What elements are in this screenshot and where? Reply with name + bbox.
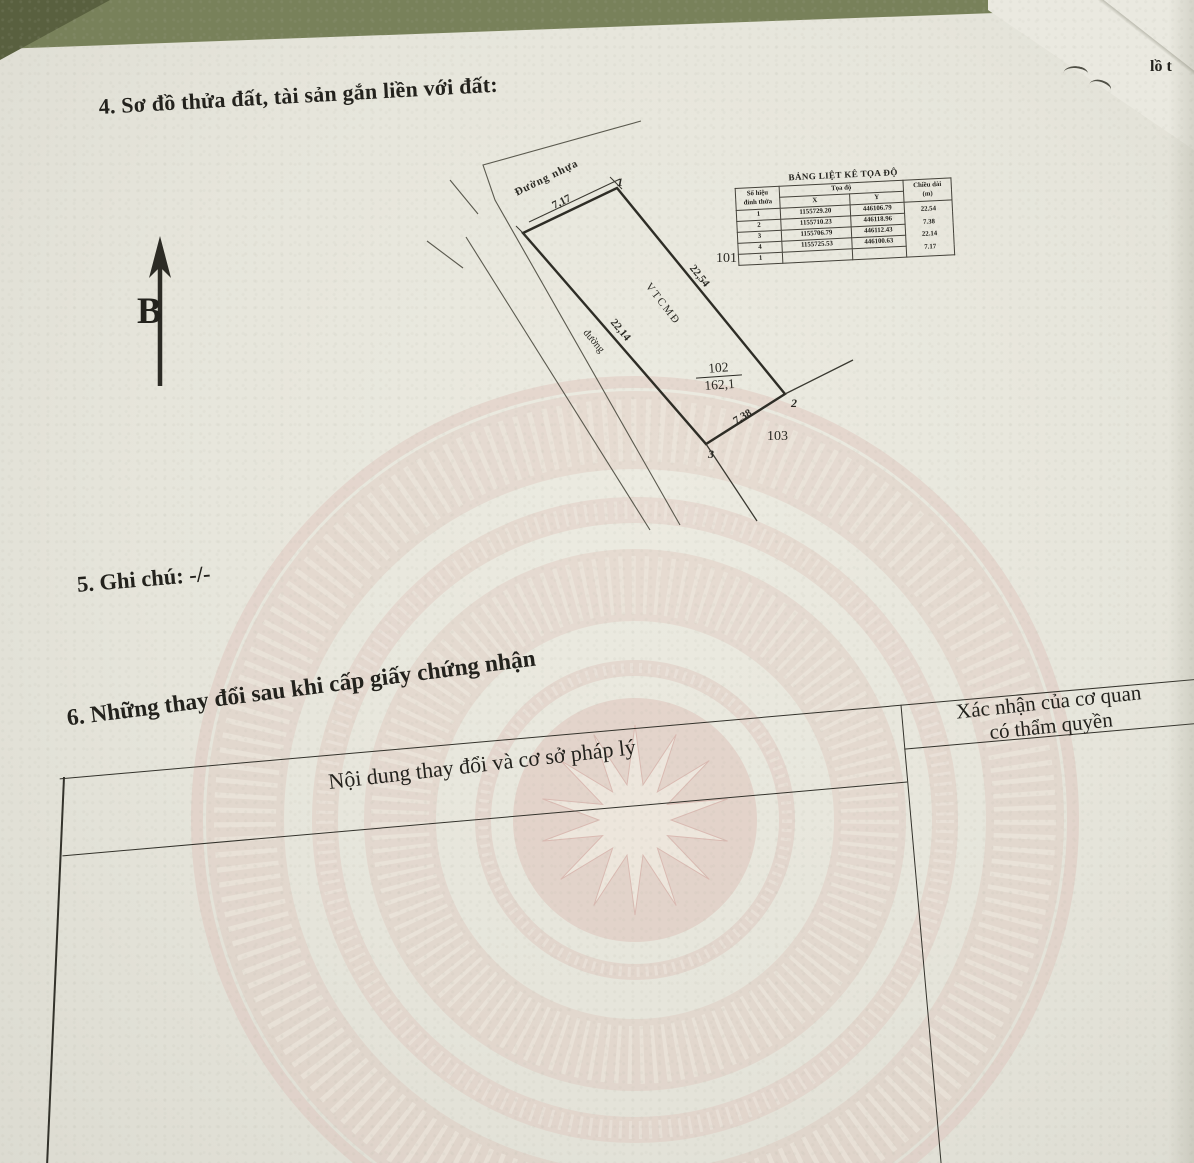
length-values-cell: 22.54 7.38 22.14 7.17 [904,200,955,257]
road-lines [427,121,680,530]
section6-block: 6. Những thay đổi sau khi cấp giấy chứng… [40,648,1194,1163]
adjacent-parcel-101: 101 [716,251,737,267]
vertex-3-label: 3 [708,447,714,462]
edge-1-2-length: 22,54 [687,263,712,290]
authority-column-header: Xác nhận của cơ quan có thẩm quyền [902,675,1194,754]
section5-note: 5. Ghi chú: -/- [76,561,211,598]
section4-title: 4. Sơ đồ thửa đất, tài sản gắn liền với … [98,64,639,120]
edge-4-1-length: 7,17 [550,192,573,211]
adjacent-parcel-103: 103 [767,429,788,445]
col-header-length: Chiều dài (m) [903,178,952,202]
page-edge-shade [1168,0,1194,1163]
parcel-number-area: 102 162,1 [695,359,743,393]
road-name-label: Đường nhựa [513,157,581,198]
section6-title: 6. Những thay đổi sau khi cấp giấy chứng… [65,646,537,733]
conversion-mark-label: VTCMĐ [643,281,683,328]
vertex-1-label: 1 [617,175,623,190]
vertex-2-label: 2 [791,396,797,411]
edge-3-4-length: 22,14 [608,317,633,344]
parcel-area: 162,1 [696,375,743,394]
col-header-vertex: Số hiệu đỉnh thửa [735,186,780,210]
north-label: B [137,293,162,330]
side-road-name-label: đường [581,328,607,356]
document-photo: lồ t 4. Sơ đồ thửa đất, tài sản gắn liền… [0,0,1194,1163]
column-divider [900,705,941,1163]
edge-2-3-length: 7,38 [731,407,754,427]
coordinate-table: BẢNG LIỆT KÊ TỌA ĐỘ Số hiệu đỉnh thửa Tọ… [734,164,956,266]
parcel-number: 102 [708,359,729,375]
